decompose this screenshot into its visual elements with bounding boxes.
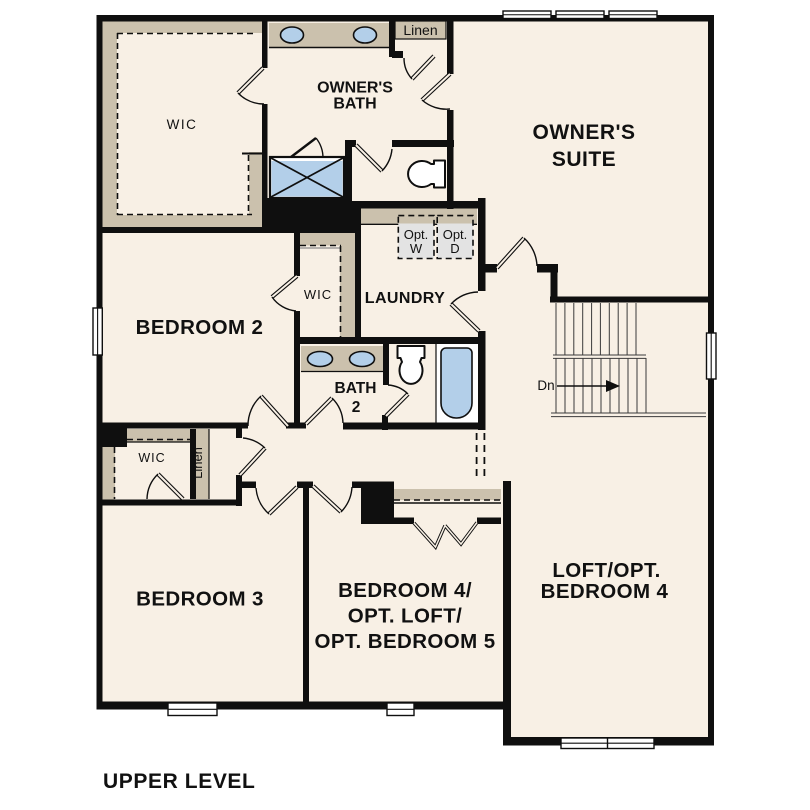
svg-text:SUITE: SUITE — [552, 148, 616, 171]
svg-text:D: D — [450, 241, 459, 256]
svg-text:WIC: WIC — [167, 117, 198, 132]
svg-text:LOFT/OPT.: LOFT/OPT. — [552, 559, 660, 582]
svg-text:BATH: BATH — [335, 380, 377, 397]
svg-text:Opt.: Opt. — [443, 227, 468, 242]
svg-text:WIC: WIC — [138, 451, 165, 465]
svg-text:Opt.: Opt. — [404, 227, 429, 242]
svg-text:Linen: Linen — [403, 22, 437, 38]
svg-text:Dn: Dn — [537, 378, 554, 393]
svg-text:BEDROOM 4: BEDROOM 4 — [541, 580, 669, 603]
svg-text:OPT. LOFT/: OPT. LOFT/ — [348, 605, 462, 628]
svg-text:BEDROOM 3: BEDROOM 3 — [136, 588, 264, 611]
svg-text:OWNER'S: OWNER'S — [533, 121, 636, 144]
svg-text:OPT. BEDROOM 5: OPT. BEDROOM 5 — [314, 630, 495, 653]
svg-text:Linen: Linen — [190, 447, 205, 479]
svg-text:OWNER'S: OWNER'S — [317, 80, 393, 97]
svg-text:UPPER LEVEL: UPPER LEVEL — [103, 770, 255, 793]
svg-text:W: W — [410, 241, 423, 256]
svg-text:LAUNDRY: LAUNDRY — [365, 290, 445, 307]
svg-text:BATH: BATH — [333, 96, 376, 113]
svg-text:WIC: WIC — [304, 287, 332, 302]
svg-text:2: 2 — [352, 399, 361, 416]
svg-text:BEDROOM 4/: BEDROOM 4/ — [338, 579, 472, 602]
svg-text:BEDROOM 2: BEDROOM 2 — [136, 316, 264, 339]
